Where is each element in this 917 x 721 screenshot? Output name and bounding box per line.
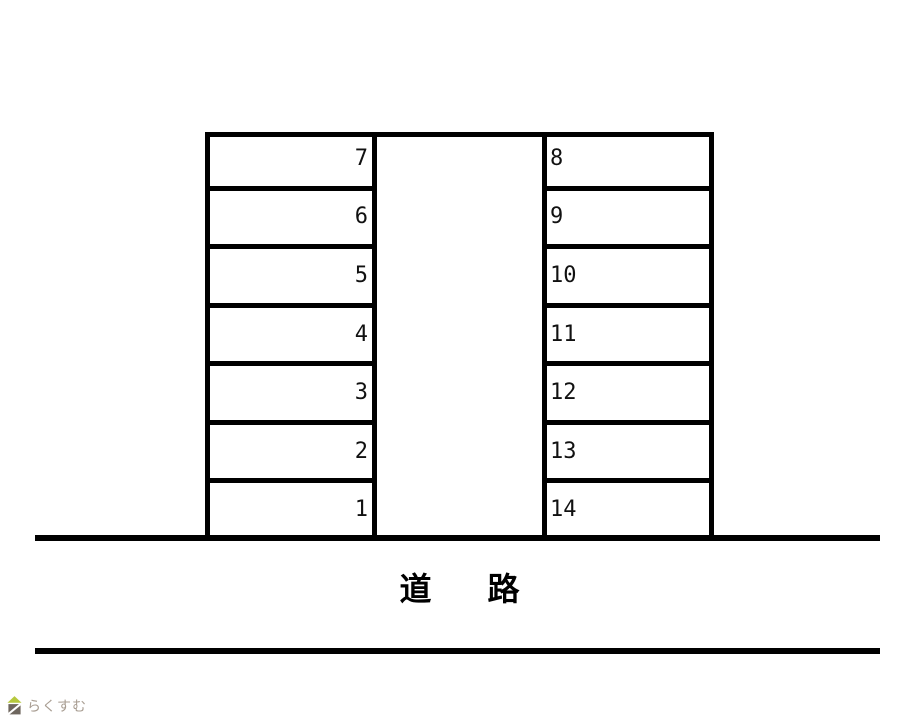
space-number: 5 bbox=[355, 265, 368, 287]
parking-space-5: 5 bbox=[210, 249, 372, 308]
space-number: 13 bbox=[550, 441, 577, 463]
parking-space-12: 12 bbox=[547, 366, 709, 425]
parking-space-4: 4 bbox=[210, 308, 372, 367]
space-number: 12 bbox=[550, 382, 577, 404]
space-number: 4 bbox=[355, 324, 368, 346]
parking-space-2: 2 bbox=[210, 425, 372, 484]
parking-space-11: 11 bbox=[547, 308, 709, 367]
space-number: 11 bbox=[550, 324, 577, 346]
parking-space-10: 10 bbox=[547, 249, 709, 308]
driveway-aisle bbox=[377, 137, 542, 537]
house-icon bbox=[7, 696, 22, 715]
parking-column-right: 891011121314 bbox=[542, 132, 714, 537]
parking-space-6: 6 bbox=[210, 191, 372, 250]
space-number: 6 bbox=[355, 206, 368, 228]
parking-space-1: 1 bbox=[210, 483, 372, 537]
road-edge-lower bbox=[35, 648, 880, 654]
space-number: 10 bbox=[550, 265, 577, 287]
space-number: 2 bbox=[355, 441, 368, 463]
parking-map-page: 7654321 891011121314 道 路 らくすむ bbox=[0, 0, 917, 721]
parking-space-13: 13 bbox=[547, 425, 709, 484]
space-number: 14 bbox=[550, 499, 577, 521]
parking-space-9: 9 bbox=[547, 191, 709, 250]
space-number: 8 bbox=[550, 148, 563, 170]
parking-column-left: 7654321 bbox=[205, 132, 377, 537]
road-label: 道 路 bbox=[205, 571, 714, 607]
parking-space-8: 8 bbox=[547, 132, 709, 191]
space-number: 1 bbox=[355, 499, 368, 521]
space-number: 7 bbox=[355, 148, 368, 170]
parking-space-3: 3 bbox=[210, 366, 372, 425]
road-edge-upper bbox=[35, 535, 880, 541]
logo: らくすむ bbox=[7, 696, 87, 715]
parking-space-7: 7 bbox=[210, 132, 372, 191]
logo-text: らくすむ bbox=[27, 699, 87, 713]
parking-space-14: 14 bbox=[547, 483, 709, 537]
space-number: 3 bbox=[355, 382, 368, 404]
space-number: 9 bbox=[550, 206, 563, 228]
